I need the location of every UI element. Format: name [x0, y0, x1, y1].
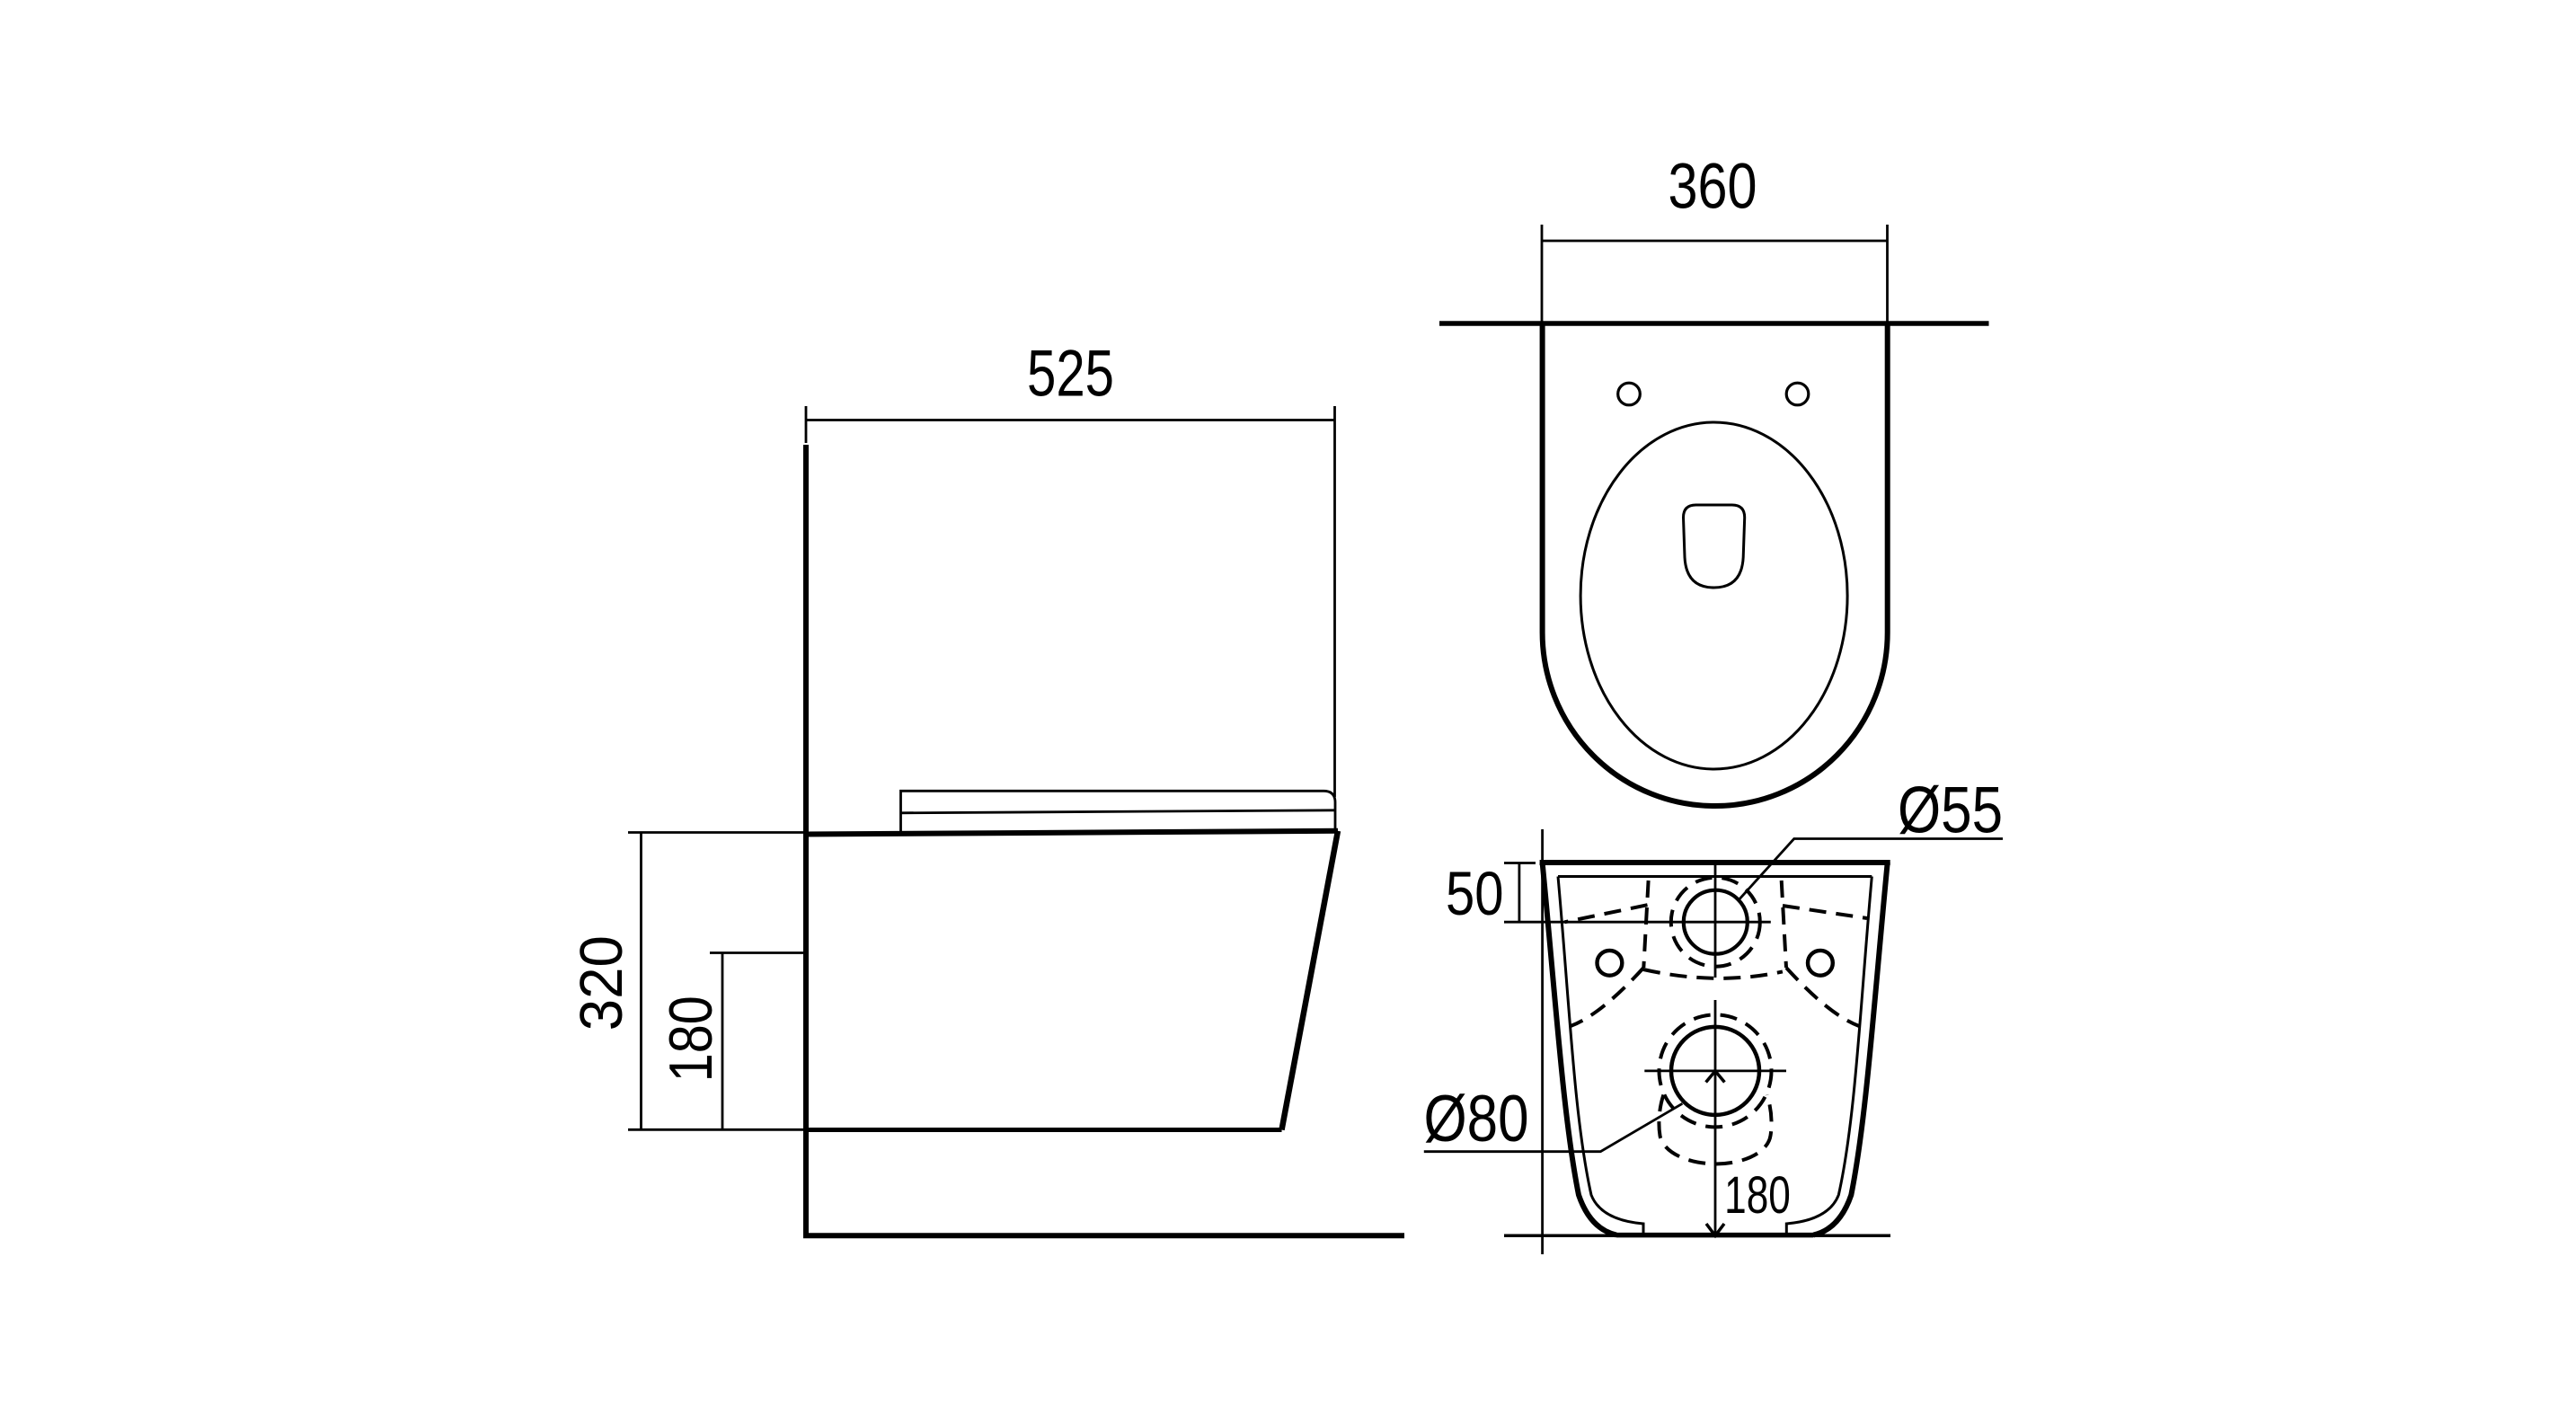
svg-text:320: 320: [568, 935, 635, 1031]
svg-text:180: 180: [1724, 1166, 1791, 1225]
svg-text:525: 525: [1027, 337, 1114, 410]
svg-text:180: 180: [657, 996, 725, 1082]
svg-text:Ø80: Ø80: [1424, 1083, 1529, 1155]
svg-text:360: 360: [1669, 152, 1757, 223]
svg-text:50: 50: [1446, 859, 1504, 928]
svg-text:Ø55: Ø55: [1898, 774, 2003, 846]
